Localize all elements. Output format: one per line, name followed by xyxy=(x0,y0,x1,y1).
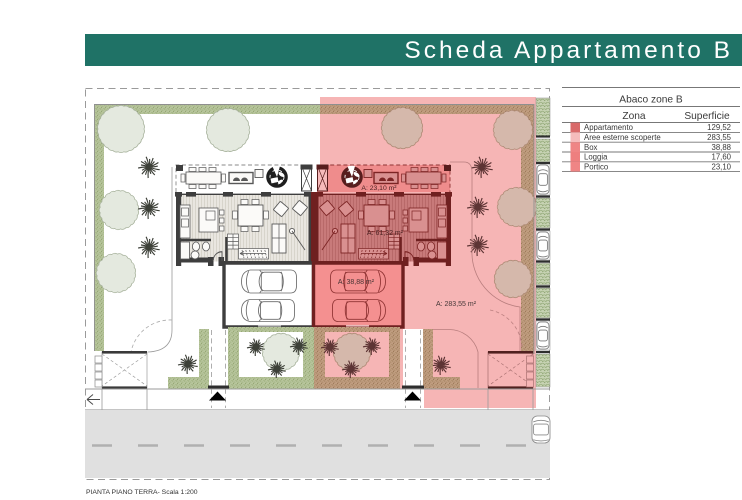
svg-text:Superficie: Superficie xyxy=(684,111,730,122)
svg-text:Zona: Zona xyxy=(622,111,646,122)
svg-text:Loggia: Loggia xyxy=(584,153,608,162)
svg-text:17,60: 17,60 xyxy=(711,153,731,162)
svg-text:A: 23,10 m²: A: 23,10 m² xyxy=(361,185,397,192)
svg-text:Appartamento: Appartamento xyxy=(584,123,634,132)
svg-text:129,52: 129,52 xyxy=(707,123,731,132)
svg-text:A: 283,55 m²: A: 283,55 m² xyxy=(436,301,477,308)
svg-text:A: 61,32 m²: A: 61,32 m² xyxy=(367,230,404,237)
svg-text:PIANTA PIANO TERRA- Scala 1:20: PIANTA PIANO TERRA- Scala 1:200 xyxy=(86,489,198,496)
svg-text:Box: Box xyxy=(584,143,598,152)
svg-text:38,88: 38,88 xyxy=(711,143,731,152)
svg-text:23,10: 23,10 xyxy=(711,162,731,171)
svg-text:A: 38,88 m²: A: 38,88 m² xyxy=(338,279,375,286)
svg-text:Scheda Appartamento B: Scheda Appartamento B xyxy=(404,37,733,64)
svg-text:Abaco zone B: Abaco zone B xyxy=(619,95,683,106)
svg-text:283,55: 283,55 xyxy=(707,133,732,142)
svg-text:Portico: Portico xyxy=(584,162,609,171)
svg-text:Aree esterne scoperte: Aree esterne scoperte xyxy=(584,133,661,142)
